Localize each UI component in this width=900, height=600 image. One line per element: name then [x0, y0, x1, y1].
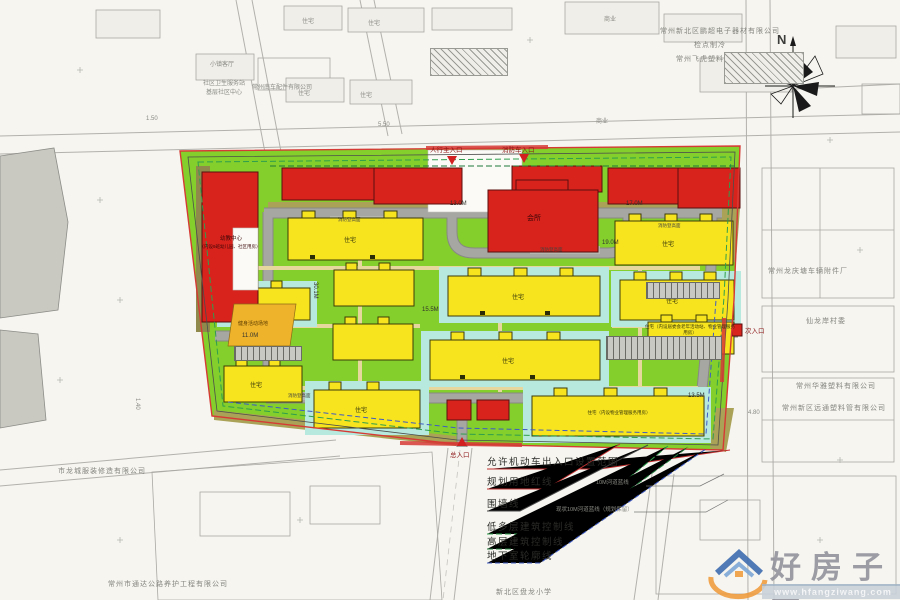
- road-width-label: 19.0M: [602, 240, 619, 246]
- road-width-label: 13.5M: [688, 393, 705, 399]
- fire-lane-label: 消防登高面: [288, 393, 311, 399]
- kindergarten-label-line1: 幼教中心: [204, 234, 258, 242]
- road-width-label: 11.0M: [242, 333, 258, 339]
- legend-item-wall-line: 围墙线: [487, 496, 520, 510]
- entrance-label-main: 总入口: [450, 449, 470, 459]
- legend-item-lowrise-control: 低多层建筑控制线: [487, 519, 575, 533]
- elevation-label: 4.80: [748, 410, 760, 416]
- context-residence-label: 住宅: [360, 90, 372, 99]
- fire-lane-label: 消防登高面: [540, 247, 563, 253]
- context-place-label: 小镇客厅: [210, 59, 234, 68]
- entrance-label-secondary: 次入口: [745, 325, 765, 335]
- context-company-label: 检点制冷: [694, 40, 726, 50]
- river-note-label: 现状10M河道蓝线（规划保留）: [556, 505, 633, 513]
- parking-lot: [606, 336, 722, 360]
- residence-label: 住宅: [355, 405, 367, 414]
- context-school-label: 新北区盘龙小学: [496, 587, 552, 597]
- kindergarten-label-line2: （内设9班幼儿园、社区用房）: [198, 244, 262, 250]
- legend-item-vehicle-entrance-range: 允许机动车出入口设置范围: [487, 454, 619, 468]
- residence-label: 住宅: [344, 235, 356, 244]
- context-company-label: 常州市通达公路养护工程有限公司: [108, 579, 228, 589]
- parking-lot: [646, 282, 720, 299]
- road-width-label: 17.0M: [626, 201, 643, 207]
- residence-label: 住宅: [502, 356, 514, 365]
- context-company-label: 常州新北区鹏超电子器材有限公司: [660, 26, 780, 36]
- watermark-url: www.hfangziwang.com: [762, 584, 900, 599]
- elevation-label: 1.50: [146, 116, 158, 122]
- residence-label: 住宅: [512, 292, 524, 301]
- context-commercial-label: 商业: [604, 14, 616, 23]
- residence-label: 住宅: [250, 380, 262, 389]
- site-plan-scan: N 人行主入口 消防车入口 总入口 次入口 会所 住宅 住宅 住宅 住宅 住宅 …: [0, 0, 900, 600]
- entrance-label-pedestrian: 人行主入口: [430, 144, 463, 154]
- residence-note-label: 住宅（内设居委会老年活动站、物业管理服务用房）: [644, 324, 736, 335]
- context-commercial-label: 商业: [596, 116, 608, 125]
- road-width-label: 15.5M: [422, 307, 439, 313]
- context-company-label: 常州龙庆塘车辆附件厂: [768, 266, 848, 276]
- context-place-label: 仙龙岸村委: [806, 316, 846, 326]
- elevation-label: 1.40: [134, 398, 140, 410]
- residence-label: 住宅: [662, 239, 674, 248]
- context-company-label: 常州新区远通塑料管有限公司: [782, 403, 886, 413]
- clubhouse-label: 会所: [527, 213, 541, 223]
- context-residence-label: 住宅: [298, 88, 310, 97]
- elevation-label: 5.50: [378, 122, 390, 128]
- context-company-label: 市龙城服装修造有限公司: [58, 466, 146, 476]
- legend-item-highrise-control: 高层建筑控制线: [487, 534, 564, 548]
- entrance-label-fire: 消防车入口: [502, 144, 535, 154]
- fire-lane-label: 消防登高面: [338, 217, 361, 223]
- watermark: 好房子网 www.hfangziwang.com: [698, 540, 898, 598]
- road-width-label: 13.0M: [450, 201, 467, 207]
- dim-label: 30.1M: [312, 282, 318, 299]
- context-residence-label: 住宅: [302, 16, 314, 25]
- context-building-under-construction: [430, 48, 508, 76]
- residence-note-label: 住宅（内设物业管理服务用房）: [560, 410, 678, 416]
- sports-area-label: 健身活动场地: [238, 320, 268, 327]
- legend-item-basement-outline: 地下室轮廓线: [487, 548, 553, 562]
- context-place-label: 基层社区中心: [206, 87, 242, 96]
- context-place-label: 社区卫生服务站: [203, 78, 245, 87]
- context-residence-label: 住宅: [368, 18, 380, 27]
- legend-item-red-line: 规划用地红线: [487, 474, 553, 488]
- context-company-label: 常州华雅塑料有限公司: [796, 381, 876, 391]
- fire-lane-label: 消防登高面: [658, 223, 681, 229]
- context-building-under-construction: [724, 52, 804, 84]
- site-plan-drawing: [0, 0, 900, 600]
- parking-lot: [234, 346, 302, 361]
- river-note-label: 10M河道蓝线: [596, 478, 629, 486]
